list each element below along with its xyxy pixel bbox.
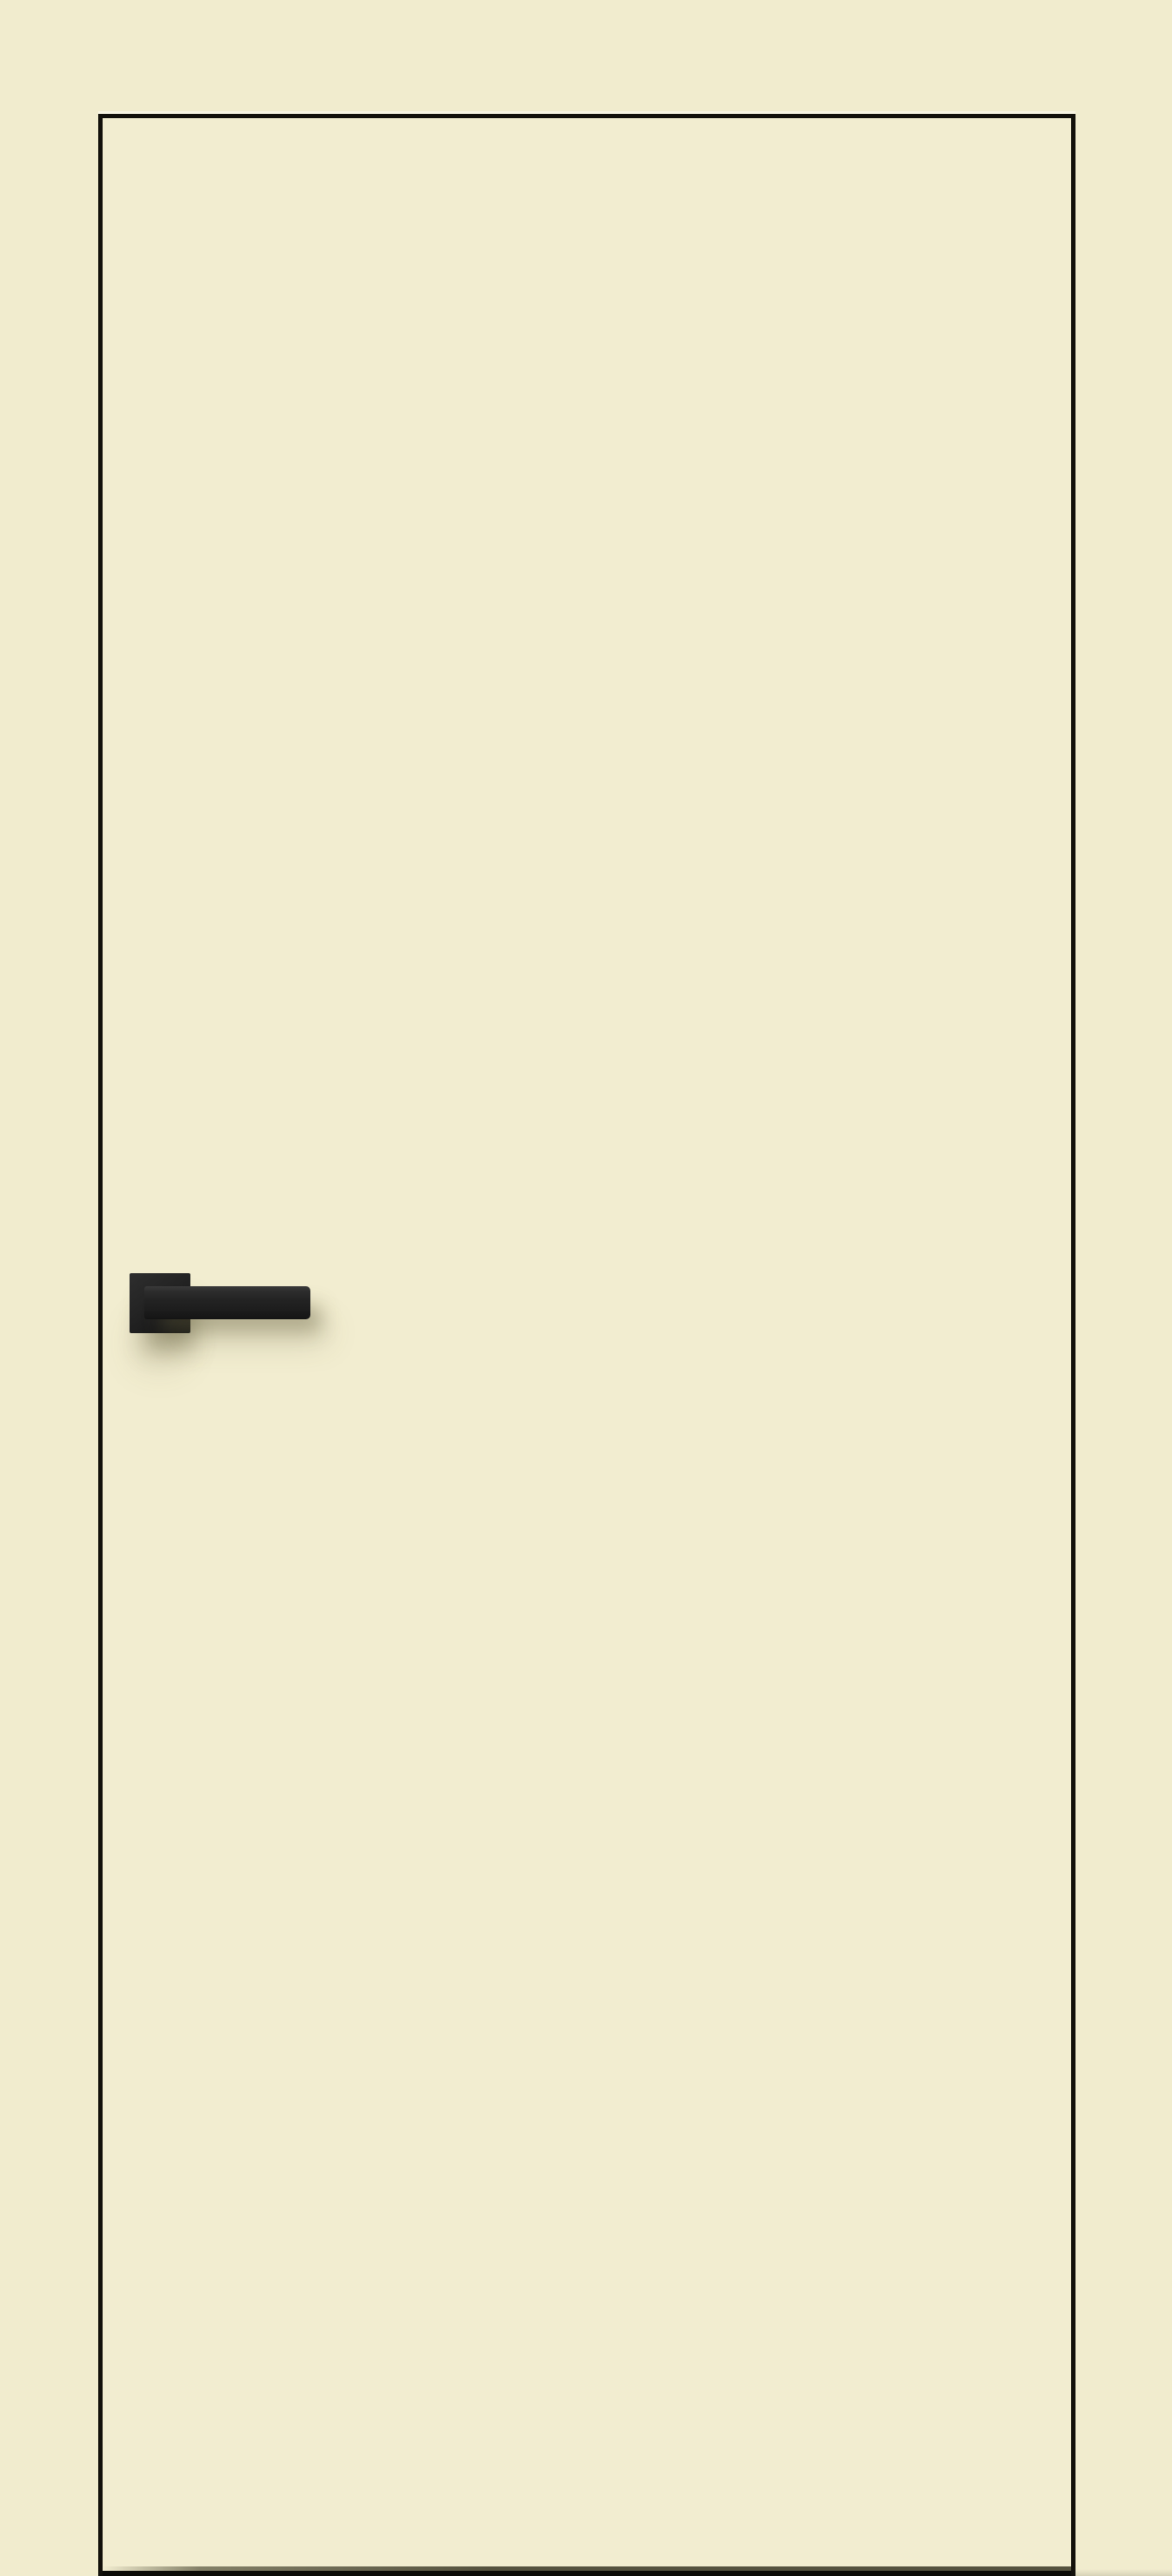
door-top-edge-highlight xyxy=(98,111,1075,114)
door-slab xyxy=(98,114,1075,2576)
handle-lever xyxy=(144,1286,310,1319)
floor-shadow xyxy=(1075,2569,1172,2576)
door-bottom-gap xyxy=(103,2571,1071,2576)
wall xyxy=(0,0,1172,2576)
